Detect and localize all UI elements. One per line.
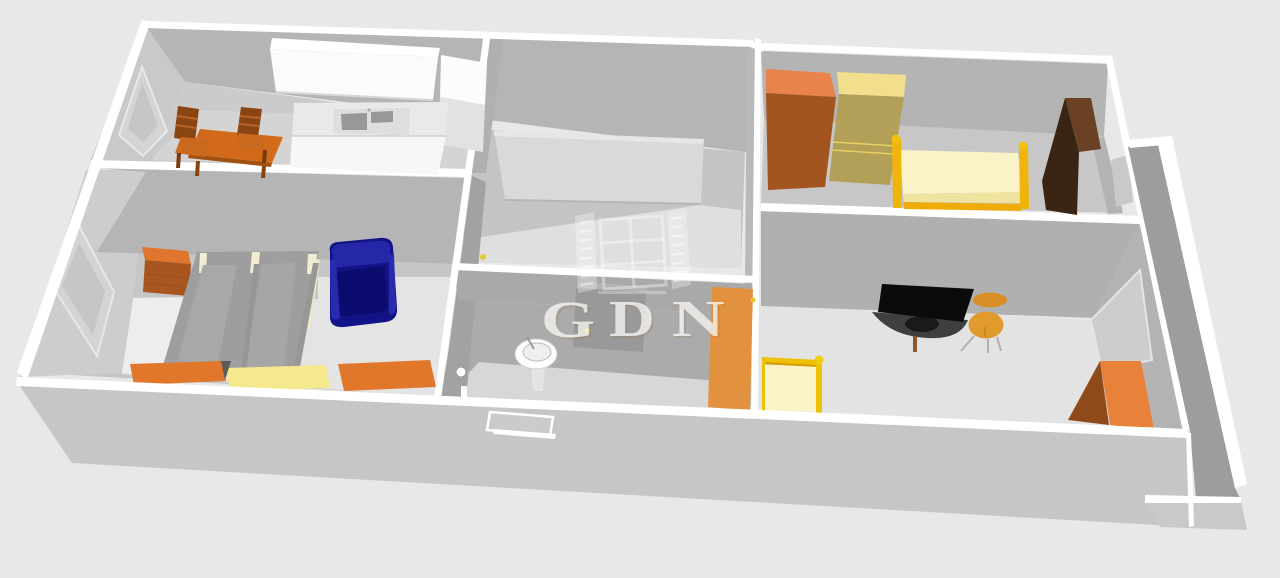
svg-text:N: N	[672, 290, 725, 348]
svg-text:D: D	[609, 289, 655, 347]
svg-text:G: G	[541, 291, 595, 349]
